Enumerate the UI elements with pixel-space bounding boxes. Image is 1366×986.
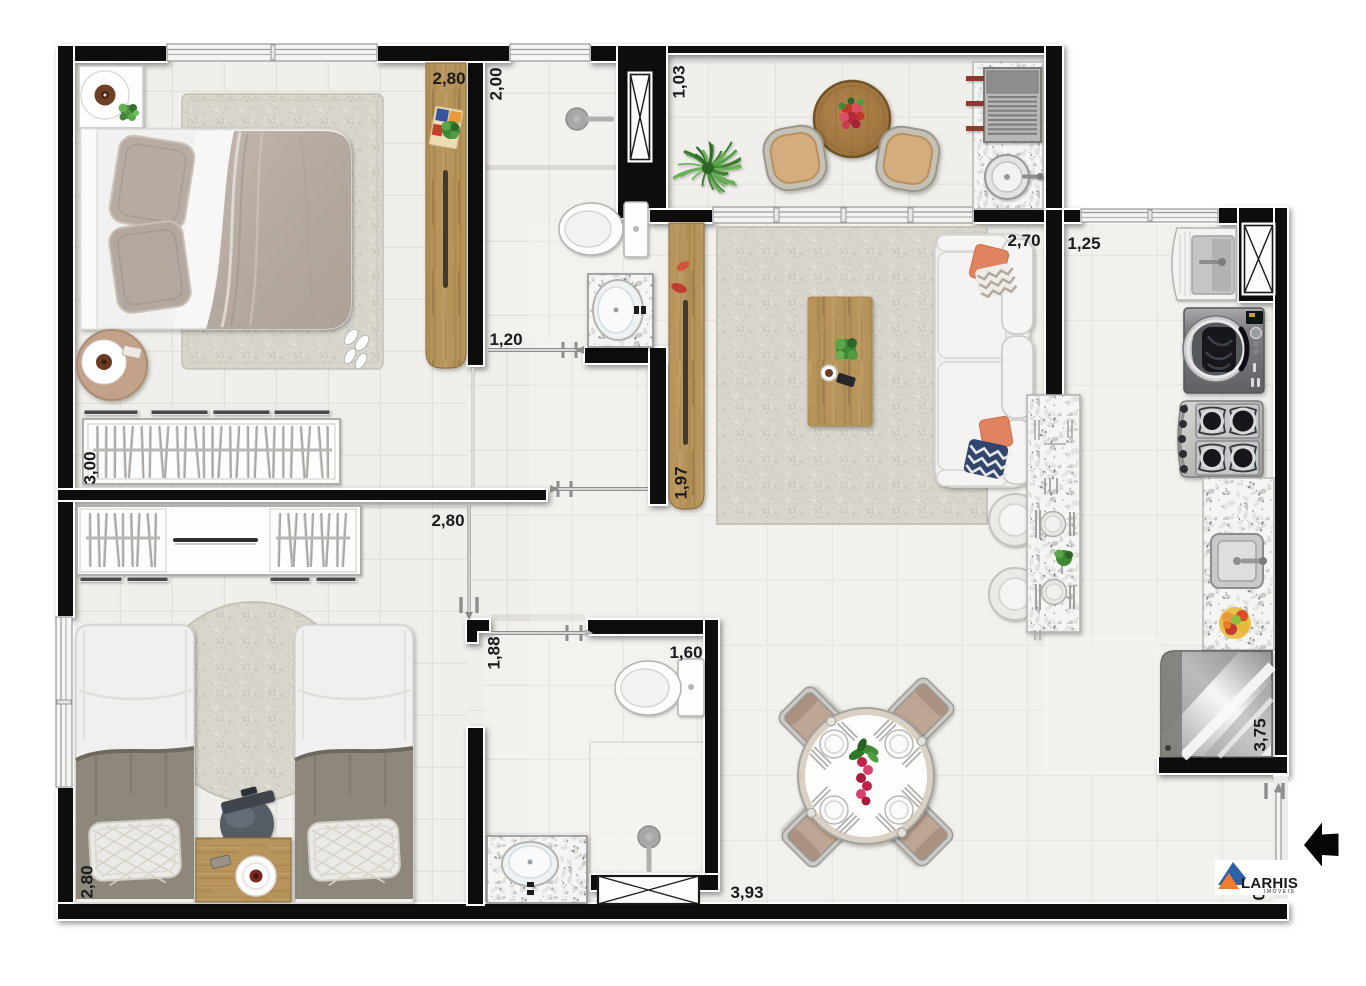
svg-text:1,03: 1,03 [670,65,689,98]
svg-text:1,60: 1,60 [669,643,702,662]
svg-text:1,20: 1,20 [489,330,522,349]
svg-text:2,80: 2,80 [431,511,464,530]
svg-text:3,00: 3,00 [81,451,100,484]
svg-text:3,75: 3,75 [1251,718,1270,751]
svg-text:2,00: 2,00 [487,67,506,100]
svg-text:1,88: 1,88 [485,636,504,669]
svg-text:IMÓVEIS: IMÓVEIS [1264,888,1295,895]
svg-text:1,25: 1,25 [1067,234,1100,253]
svg-text:2,80: 2,80 [78,865,97,898]
svg-text:3,93: 3,93 [730,883,763,902]
svg-text:2,80: 2,80 [432,69,465,88]
svg-text:1,97: 1,97 [672,466,691,499]
svg-text:2,70: 2,70 [1007,231,1040,250]
